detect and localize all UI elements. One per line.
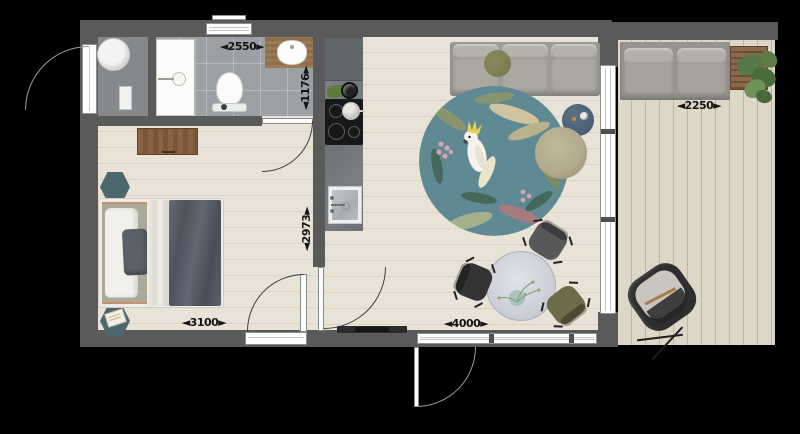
window-sill-exterior [212, 15, 246, 20]
wall-bathroom-bottom [98, 116, 262, 126]
dresser [137, 128, 198, 155]
basin-tap [290, 45, 294, 49]
wall-top [80, 20, 612, 37]
pouf [535, 127, 587, 179]
dim-living-width: ◄4000► [431, 318, 501, 330]
window-bathroom-top [206, 23, 252, 35]
sink-faucet [331, 204, 345, 206]
door-swing-utility [25, 46, 89, 110]
wall-post-right-bottom [598, 312, 618, 347]
dim-bath-depth: ◄1176► [300, 53, 312, 123]
table-plant-sprigs [495, 276, 547, 310]
bed-duvet-white [147, 200, 171, 306]
bed [98, 198, 224, 308]
dining-table [486, 251, 556, 321]
wall-utility-partition [148, 37, 156, 116]
dim-terrace-width: ◄2250► [664, 100, 734, 112]
wall-post-right-top [598, 37, 618, 67]
dim-bedroom-width: ◄3100► [169, 317, 239, 329]
dim-bedroom-depth: ◄2973► [301, 194, 313, 264]
toilet-bowl [216, 72, 243, 105]
doormat [337, 326, 407, 333]
glass-wall-terrace [600, 65, 616, 314]
bed-duvet-dark [169, 200, 221, 306]
outdoor-sofa [620, 42, 730, 100]
wall-interior-vertical [313, 20, 325, 267]
kettle [341, 82, 358, 99]
kitchen-sink [328, 186, 362, 224]
door-swing-living-exterior [416, 347, 476, 407]
cooktop [325, 99, 363, 145]
kitchen-tall-unit [325, 37, 363, 81]
shower-arm [158, 78, 174, 80]
bed-pillow-dark [122, 228, 149, 275]
dim-bath-width: ◄2550► [207, 41, 277, 53]
boiler [97, 38, 130, 71]
toilet-base [212, 103, 247, 112]
pot-on-cooktop [342, 102, 360, 120]
shower-drain [172, 72, 186, 86]
door-bedroom-exterior-sill [245, 332, 307, 345]
wall-terrace-top [612, 22, 778, 40]
sofa-pillow-olive [484, 50, 511, 77]
glazing-living-south [417, 333, 597, 344]
floorplan-canvas: ◄2550► ◄1176► ◄2973► ◄3100► ◄4000► ◄2250… [0, 0, 800, 434]
toilet-flush-button [221, 104, 227, 110]
utility-box [119, 86, 132, 110]
shower-glass [194, 40, 196, 115]
